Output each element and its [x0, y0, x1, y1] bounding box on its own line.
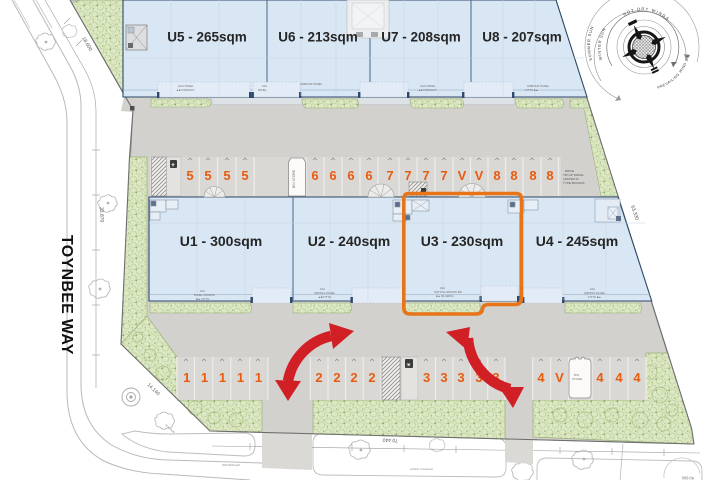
- svg-text:300x300 kerb: 300x300 kerb: [222, 463, 241, 467]
- svg-text:33.870: 33.870: [98, 207, 105, 223]
- svg-text:7: 7: [386, 168, 393, 183]
- svg-text:2: 2: [368, 370, 375, 385]
- svg-text:TOYNBEE WAY: TOYNBEE WAY: [58, 235, 75, 355]
- svg-text:5: 5: [186, 168, 193, 183]
- svg-text:U1 - 300sqm: U1 - 300sqm: [180, 233, 262, 249]
- svg-text:1: 1: [255, 370, 262, 385]
- svg-text:60.960: 60.960: [681, 476, 694, 480]
- svg-text:ARMOUR PANEL: ARMOUR PANEL: [300, 82, 323, 86]
- svg-text:5: 5: [204, 168, 211, 183]
- svg-text:7: 7: [422, 168, 429, 183]
- svg-text:2: 2: [333, 370, 340, 385]
- svg-text:3: 3: [457, 370, 464, 385]
- svg-text:1: 1: [237, 370, 244, 385]
- svg-text:6: 6: [329, 168, 336, 183]
- svg-text:2: 2: [350, 370, 357, 385]
- svg-text:U8 - 207sqm: U8 - 207sqm: [482, 30, 562, 45]
- svg-text:4: 4: [537, 370, 545, 385]
- svg-text:2: 2: [315, 370, 322, 385]
- svg-text:3: 3: [440, 370, 447, 385]
- svg-text:PANEL: PANEL: [258, 88, 267, 92]
- svg-text:V: V: [458, 168, 467, 183]
- svg-text:70.440: 70.440: [382, 436, 398, 443]
- svg-text:U4 - 245sqm: U4 - 245sqm: [536, 233, 618, 249]
- svg-text:■▲ FITTG: ■▲ FITTG: [196, 297, 209, 301]
- svg-text:▲■ FORKLIFT: ▲■ FORKLIFT: [418, 88, 437, 92]
- svg-text:3: 3: [423, 370, 430, 385]
- svg-text:6: 6: [365, 168, 372, 183]
- svg-text:1: 1: [183, 370, 190, 385]
- svg-text:BIN STORE: BIN STORE: [292, 169, 296, 188]
- svg-text:8: 8: [510, 168, 517, 183]
- svg-text:7: 7: [440, 168, 447, 183]
- svg-text:U7 - 208sqm: U7 - 208sqm: [381, 30, 461, 45]
- svg-text:U3 - 230sqm: U3 - 230sqm: [421, 233, 503, 249]
- svg-text:7: 7: [404, 168, 411, 183]
- svg-text:V: V: [475, 168, 484, 183]
- svg-text:U5 - 265sqm: U5 - 265sqm: [167, 30, 247, 45]
- svg-text:▲■ FITTG: ▲■ FITTG: [318, 295, 331, 299]
- svg-text:■▲ 84 AWNG: ■▲ 84 AWNG: [436, 294, 454, 298]
- svg-text:vehicle crossover: vehicle crossover: [410, 467, 433, 471]
- svg-text:1: 1: [219, 370, 226, 385]
- svg-text:STORE: STORE: [572, 377, 582, 381]
- svg-text:4: 4: [615, 370, 623, 385]
- svg-text:⚹: ⚹: [171, 163, 175, 169]
- svg-text:4: 4: [633, 370, 641, 385]
- svg-text:U2 - 240sqm: U2 - 240sqm: [308, 233, 390, 249]
- svg-text:U6 - 213sqm: U6 - 213sqm: [278, 30, 358, 45]
- svg-text:5: 5: [241, 168, 248, 183]
- svg-text:8: 8: [529, 168, 536, 183]
- svg-text:8: 8: [493, 168, 500, 183]
- svg-text:6: 6: [311, 168, 318, 183]
- svg-text:V: V: [555, 370, 564, 385]
- svg-text:4: 4: [596, 370, 604, 385]
- svg-text:8: 8: [546, 168, 553, 183]
- svg-text:▲■ FORKLIFT: ▲■ FORKLIFT: [176, 88, 195, 92]
- svg-text:6: 6: [347, 168, 354, 183]
- svg-text:1: 1: [201, 370, 208, 385]
- svg-text:5: 5: [223, 168, 230, 183]
- svg-text:FITTG ■▲: FITTG ■▲: [588, 295, 602, 299]
- svg-text:FITTG ■▲: FITTG ■▲: [525, 88, 539, 92]
- svg-text:TYPE BOUNDS: TYPE BOUNDS: [563, 181, 585, 185]
